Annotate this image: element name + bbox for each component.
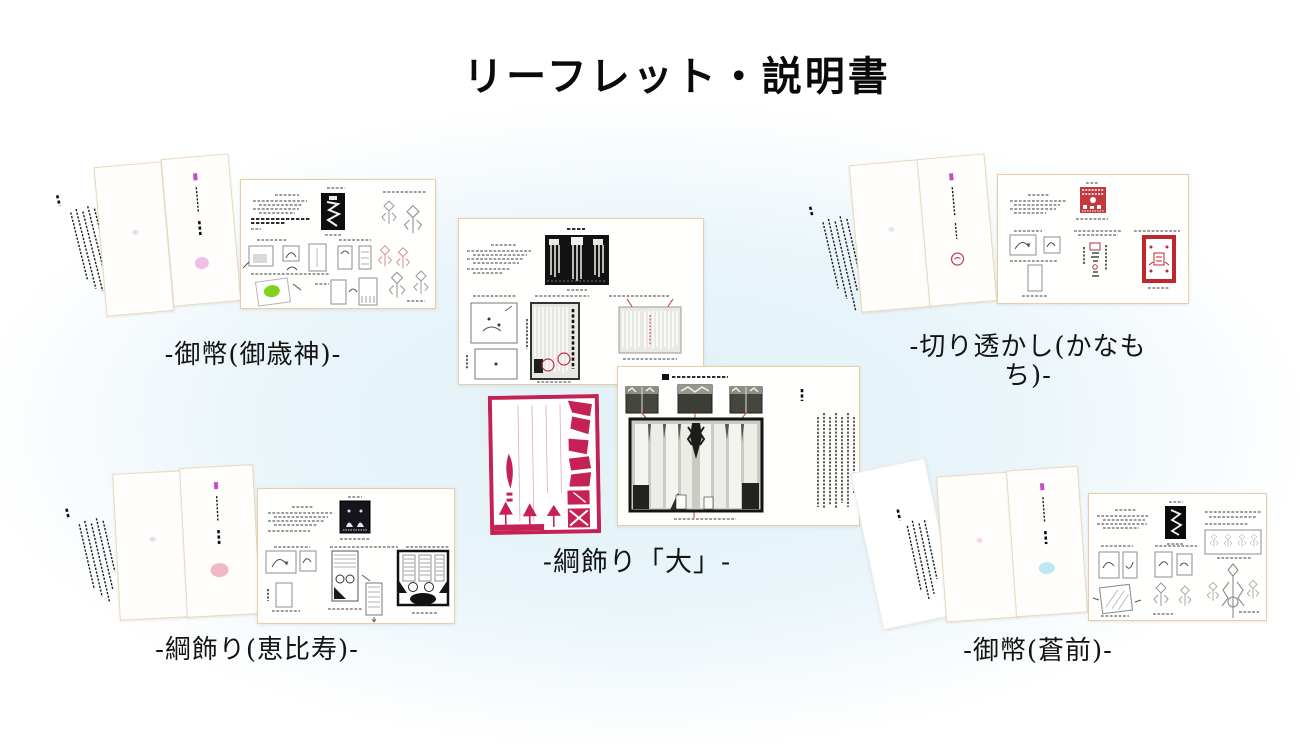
tsunakazari-large-photo xyxy=(630,419,762,511)
instruction-sheet-tsunakazari-dai-2 xyxy=(617,366,860,526)
gohei-line-drawings xyxy=(379,192,428,301)
fold-step-diagrams xyxy=(243,244,371,271)
tsunakazari-photo xyxy=(545,235,609,285)
gohei-row-diagram xyxy=(1205,530,1261,558)
cover-stamp xyxy=(194,256,209,269)
hanging-photo-diagram xyxy=(527,303,579,382)
materials-text xyxy=(268,507,332,531)
finished-diagram xyxy=(398,551,448,613)
leaflet-cover xyxy=(917,153,998,306)
materials-text xyxy=(1010,195,1066,213)
cover-title-text xyxy=(217,496,218,522)
cover-stamp xyxy=(951,253,964,266)
cover-art xyxy=(1007,467,1087,617)
fold-crease-mark xyxy=(149,537,155,542)
ebisu-photo xyxy=(340,501,370,533)
fold-crease-mark xyxy=(132,230,138,236)
cover-subtitle-text xyxy=(199,221,200,235)
finished-hanging-photo xyxy=(619,299,681,367)
caption-kirisukashi-kanamochi: -切り透かし(かなもち)- xyxy=(898,333,1158,390)
description-vertical-text xyxy=(818,413,854,509)
page-title: リーフレット・説明書 xyxy=(77,57,1277,97)
cover-title-text xyxy=(196,187,198,213)
layout-diagram xyxy=(467,303,517,379)
cover-art xyxy=(180,465,260,617)
folded-sample xyxy=(1074,231,1122,276)
caption-gohei-mitoshigami: -御幣(御歳神)- xyxy=(133,341,373,370)
kirisukashi-red-sample xyxy=(1080,187,1106,213)
materials-text xyxy=(1097,510,1149,528)
cover-title-text xyxy=(952,187,954,215)
instruction-sheet-gohei-souzen xyxy=(1088,493,1267,621)
cover-stamp xyxy=(210,563,229,578)
instruction-sheet-kirisukashi xyxy=(997,174,1189,304)
cover-title-mark xyxy=(1040,483,1044,490)
caption-tsunakazari-dai: -綱飾り「大」- xyxy=(517,548,757,578)
cover-title-mark xyxy=(949,173,954,180)
caption-tsunakazari-ebisu: -綱飾り(恵比寿)- xyxy=(137,636,377,665)
cover-art xyxy=(162,154,240,305)
cover-title-mark xyxy=(193,173,198,180)
fold-step-diagrams xyxy=(1099,552,1192,578)
fold-crease-mark xyxy=(888,227,894,233)
cover-title-mark xyxy=(214,482,218,489)
red-papercut-artwork xyxy=(488,394,601,537)
instruction-sheet-tsunakazari-ebisu xyxy=(257,488,455,624)
gohei-photo xyxy=(321,193,345,230)
cover-subtitle-text xyxy=(218,530,219,544)
fold-step-diagrams xyxy=(1010,231,1060,296)
leaflet-gallery-page: リーフレット・説明書 xyxy=(0,0,1300,754)
cover-art xyxy=(918,154,996,305)
detail-photos xyxy=(626,385,762,413)
cover-stamp xyxy=(1038,562,1055,575)
leaflet-cover xyxy=(179,464,261,618)
assembly-diagram xyxy=(328,551,382,622)
materials-text xyxy=(467,245,531,273)
green-dot-diagram xyxy=(255,278,290,306)
caption-gohei-souzen: -御幣(蒼前)- xyxy=(918,637,1158,666)
fold-step-diagrams xyxy=(266,551,316,611)
instruction-sheet-gohei-mitoshigami xyxy=(240,179,436,309)
instruction-sheet-tsunakazari-dai-1 xyxy=(458,218,704,385)
materials-text xyxy=(251,195,311,229)
large-gohei-drawing xyxy=(1222,564,1244,618)
souzen-gohei-photo xyxy=(1165,506,1186,539)
finished-red-piece xyxy=(1134,231,1180,288)
cover-subtitle-text xyxy=(1045,531,1046,544)
leaflet-cover xyxy=(161,153,242,306)
leaflet-inner-page xyxy=(112,470,190,620)
cover-subtitle-text xyxy=(955,223,956,239)
cover-title-text xyxy=(1043,497,1045,523)
fold-crease-mark xyxy=(976,538,982,543)
fold-hatch-diagram xyxy=(1100,584,1133,613)
leaflet-cover xyxy=(1006,466,1088,618)
